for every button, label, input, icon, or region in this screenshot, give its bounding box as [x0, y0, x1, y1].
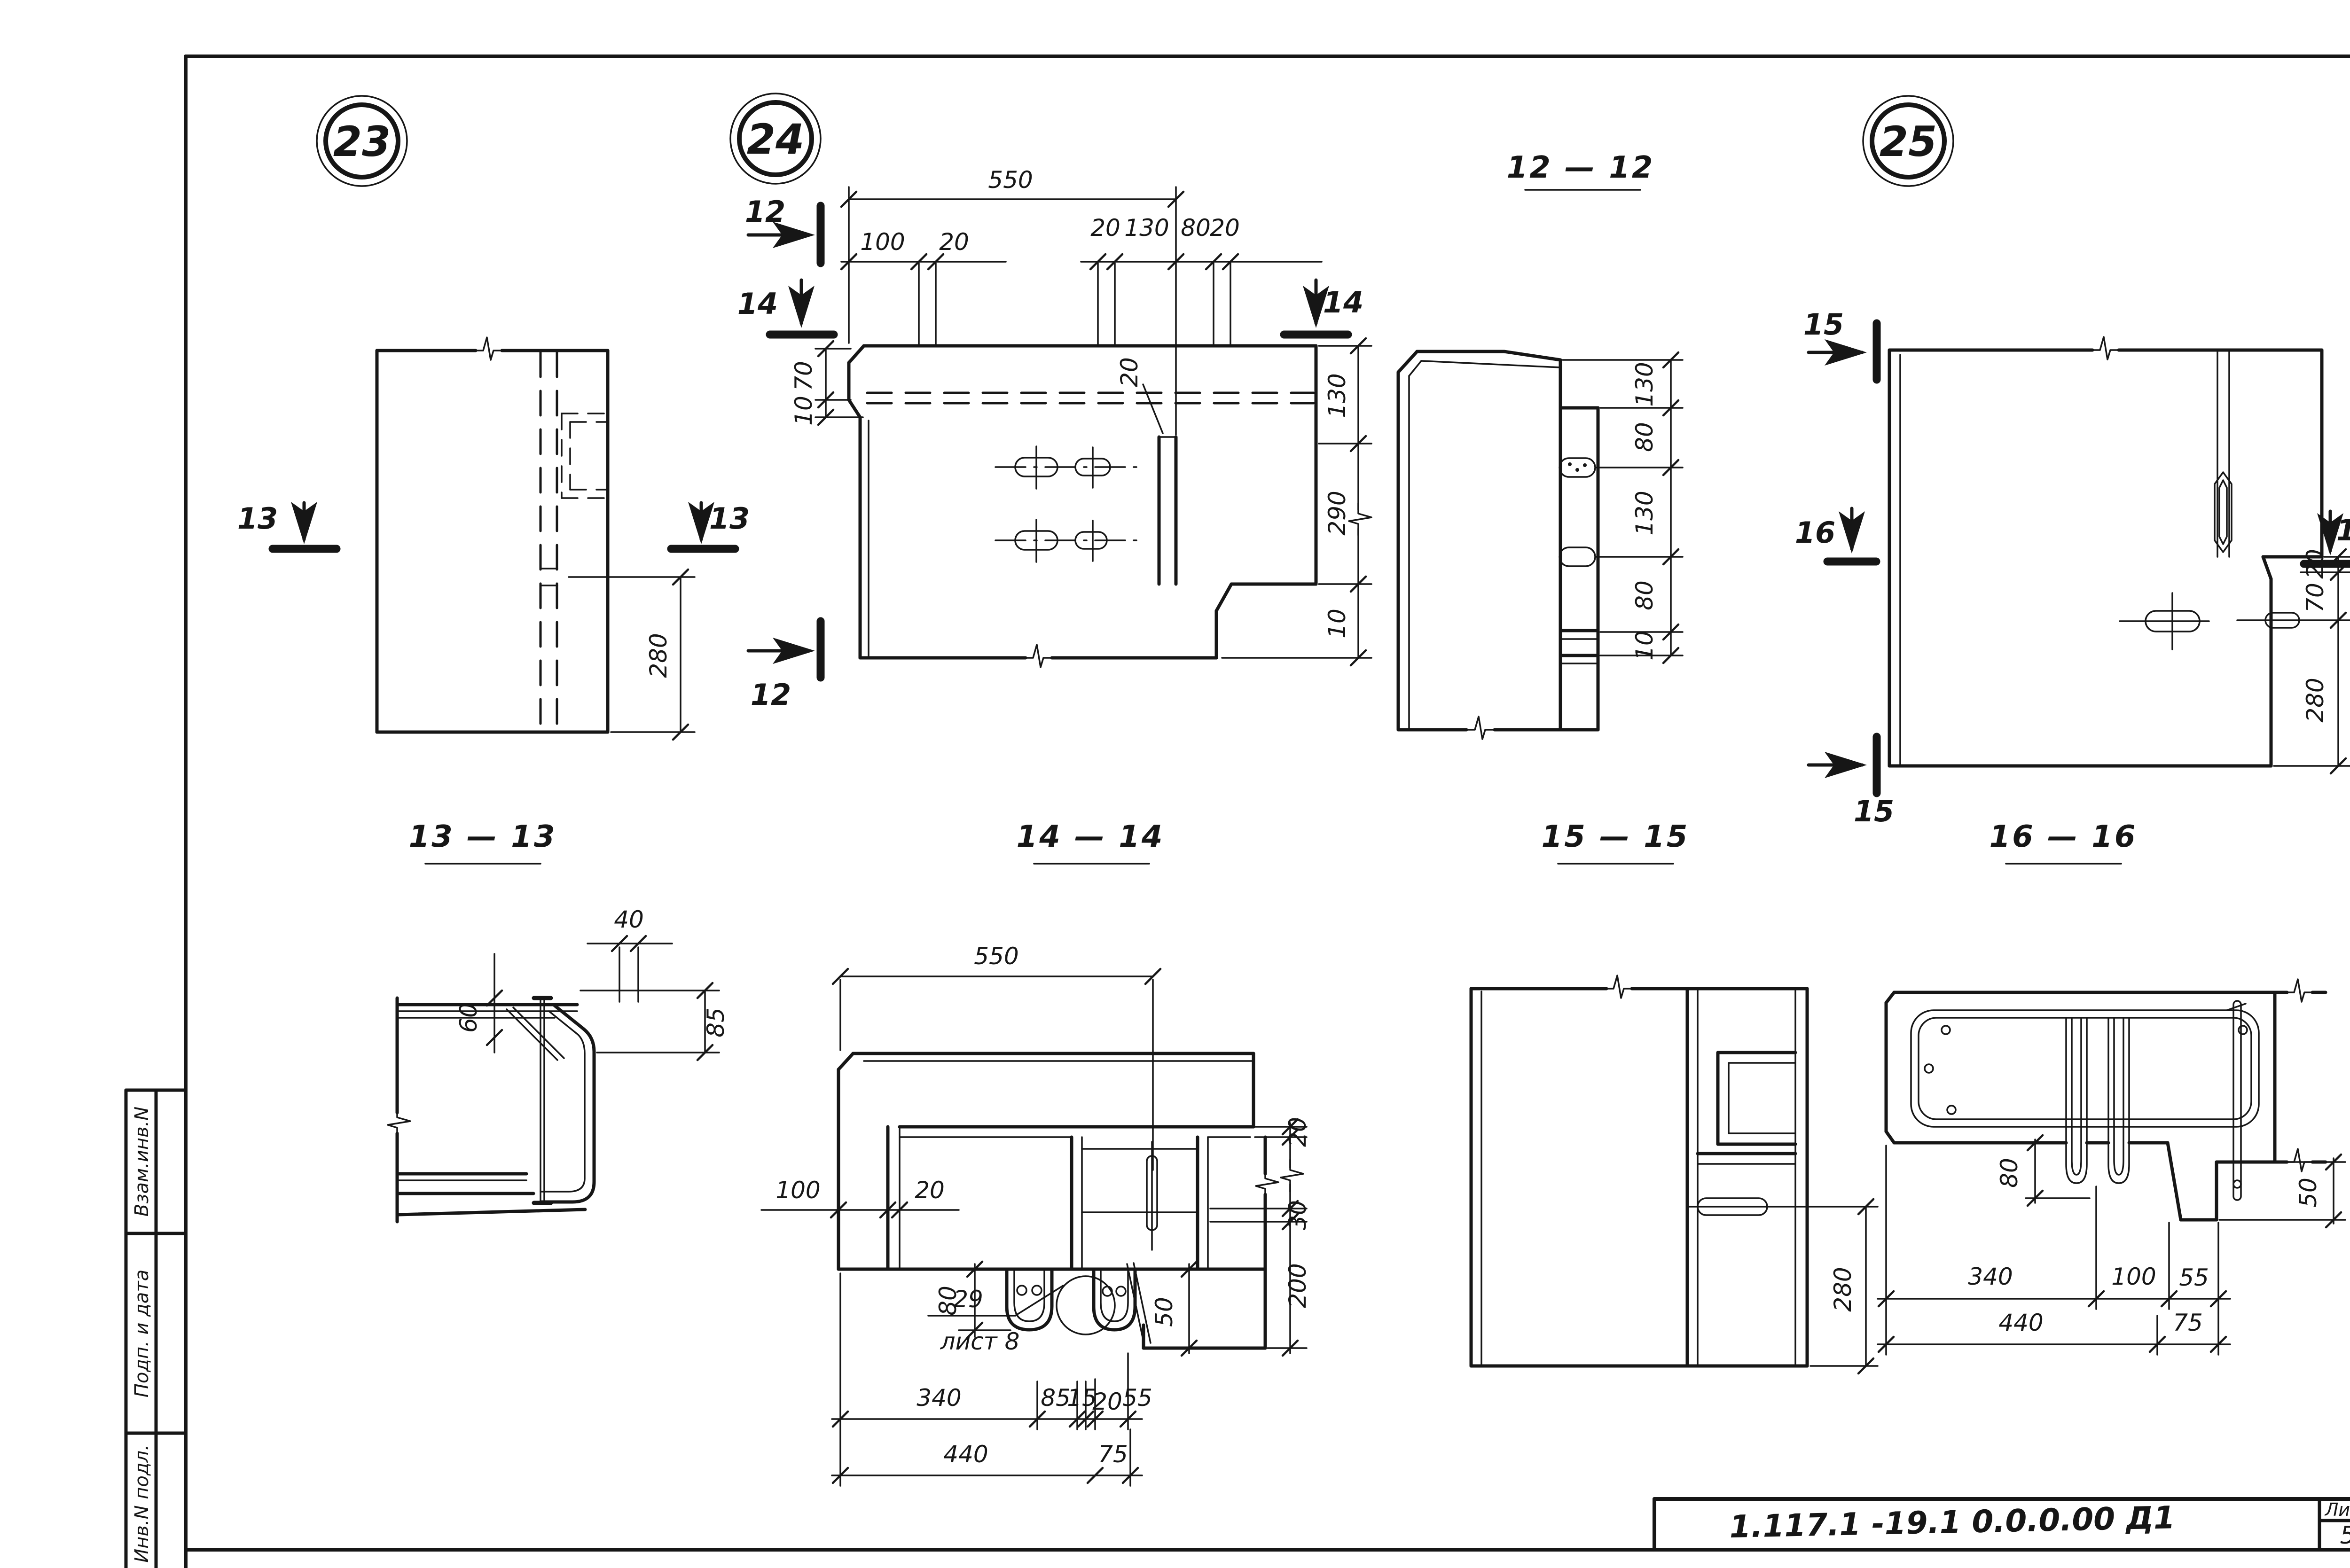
dim-v13-60: 60 [455, 1003, 482, 1033]
badge-24-number: 24 [747, 115, 804, 164]
view-23-cut-marker-13-right: 13 [671, 501, 750, 549]
dim-v14-20: 20 [915, 1177, 945, 1204]
section-title-14: 14 — 14 [1017, 819, 1165, 864]
svg-text:15: 15 [1803, 307, 1844, 342]
view-25-cut-marker-16-left: 16 [1795, 508, 1876, 562]
dim-v14-550: 550 [974, 943, 1018, 970]
svg-text:12: 12 [751, 678, 791, 712]
view-23-cut-marker-13-left: 13 [237, 501, 337, 549]
dim-v24-20a: 20 [939, 228, 969, 256]
view-16-16: 80 50 340 100 55 440 75 [1878, 979, 2345, 1355]
section-title-16: 16 — 16 [1990, 819, 2138, 864]
view-23-body [377, 337, 608, 732]
dim-v25-70: 70 [2302, 583, 2329, 613]
dim-v23-280: 280 [645, 633, 672, 678]
dim-v16-440: 440 [1998, 1309, 2043, 1336]
dim-v14-85: 85 [1041, 1384, 1071, 1412]
dim-v14-20r: 20 [1284, 1117, 1311, 1147]
view-15-15-body [1471, 975, 1807, 1366]
section-title-15: 15 — 15 [1542, 819, 1690, 864]
dim-v14-75: 75 [1098, 1441, 1128, 1468]
sidebar-label-inv: Инв.N подл. [131, 1444, 153, 1563]
dim-v15-280: 280 [1829, 1267, 1856, 1311]
view-24-cut-marker-12-bottom: 12 [748, 621, 821, 712]
view-15-15-dims: 280 [1687, 1199, 1878, 1373]
blueprint-canvas: Взам.инв.N Подп. и дата Инв.N подл. 1.11… [0, 0, 2350, 1568]
dim-v24-20c: 20 [1210, 214, 1240, 242]
dim-v12-130b: 130 [1631, 491, 1658, 535]
view-25-body [1889, 337, 2322, 766]
dim-v16-80: 80 [1996, 1158, 2023, 1188]
sidebar-stamp-column: Взам.инв.N Подп. и дата Инв.N подл. [126, 1090, 186, 1568]
dim-v24-slot20: 20 [1116, 357, 1143, 387]
dim-v24-10a: 10 [790, 396, 817, 426]
view-25-cut-marker-15-bottom: 15 [1809, 737, 1894, 828]
doc-number: 1.117.1 -19.1 0.0.0.00 Д1 [1729, 1499, 2176, 1545]
view-23-dims: 280 [569, 569, 695, 740]
dim-v24-80: 80 [1181, 214, 1211, 242]
sidebar-label-podp: Подп. и дата [131, 1270, 153, 1397]
svg-text:14: 14 [1323, 285, 1363, 320]
view-12-12-body [1398, 351, 1598, 739]
dim-v14-200: 200 [1284, 1263, 1311, 1308]
svg-text:13: 13 [709, 501, 750, 536]
dim-v12-10: 10 [1631, 631, 1658, 661]
svg-text:16: 16 [2336, 513, 2350, 547]
dim-v14-50: 50 [1151, 1297, 1178, 1327]
dim-v12-80b: 80 [1631, 580, 1658, 610]
sheet-number: 5 [2340, 1521, 2350, 1550]
view-14-14: 29 лист 8 550 100 20 80 50 [761, 943, 1311, 1486]
section-title-13: 13 — 13 [409, 819, 557, 864]
sheet-frame [186, 56, 2350, 1568]
dim-v14-340: 340 [916, 1384, 961, 1412]
view-24-cut-marker-14-right: 14 [1284, 280, 1363, 335]
drawing-sheet: Взам.инв.N Подп. и дата Инв.N подл. 1.11… [0, 0, 2350, 1568]
svg-text:14 — 14: 14 — 14 [1017, 819, 1165, 854]
detail-badge-23: 23 [317, 96, 407, 186]
dim-v24-290: 290 [1324, 491, 1351, 535]
svg-text:13 — 13: 13 — 13 [409, 819, 557, 854]
view-14-14-dims: 550 100 20 80 50 20 30 200 [761, 943, 1311, 1486]
dim-v14-55: 55 [1122, 1384, 1152, 1412]
svg-text:16: 16 [1795, 515, 1835, 550]
dim-v16-55: 55 [2179, 1264, 2209, 1291]
dim-v12-80a: 80 [1631, 422, 1658, 452]
view-24-cut-marker-14-left: 14 [737, 280, 834, 335]
view-25-cut-marker-15-top: 15 [1803, 307, 1877, 380]
view-25-dims: 20 70 280 [2237, 549, 2350, 773]
badge-23-number: 23 [333, 117, 391, 166]
badge-25-number: 25 [1880, 117, 1937, 166]
view-13-13-body [388, 998, 594, 1222]
sheet-word: Лист [2324, 1499, 2350, 1520]
svg-text:12: 12 [745, 195, 785, 229]
view-25: 15 15 16 16 20 70 [1795, 307, 2350, 828]
dim-v24-130: 130 [1124, 214, 1169, 242]
view-16-16-body [1886, 979, 2326, 1220]
view-13-13: 40 60 85 [388, 906, 729, 1222]
svg-text:13: 13 [237, 501, 278, 536]
view-12-12: 130 80 130 80 10 [1398, 351, 1683, 739]
view-14-14-body [838, 1053, 1278, 1348]
dim-v13-85: 85 [702, 1007, 729, 1038]
dim-v12-130a: 130 [1631, 362, 1658, 406]
detail-badge-25: 25 [1863, 96, 1953, 186]
dim-v16-100: 100 [2111, 1263, 2156, 1290]
dim-v24-20b: 20 [1090, 214, 1120, 242]
svg-text:14: 14 [737, 287, 778, 321]
sidebar-label-vzam: Взам.инв.N [131, 1107, 153, 1217]
section-title-12: 12 — 12 [1507, 150, 1655, 190]
view-24-dims: 550 100 20 20 130 80 20 20 70 [790, 166, 1371, 665]
dim-v16-75: 75 [2173, 1309, 2203, 1336]
dim-v24-550: 550 [988, 166, 1033, 194]
callout-sheet-ref: лист 8 [940, 1328, 1020, 1355]
dim-v13-40: 40 [614, 906, 644, 933]
detail-badge-24: 24 [730, 94, 821, 184]
dim-v24-70: 70 [790, 361, 817, 391]
dim-v16-340: 340 [1968, 1263, 2013, 1290]
dim-v14-80: 80 [934, 1286, 962, 1316]
dim-v14-440: 440 [943, 1441, 988, 1468]
svg-text:15: 15 [1854, 794, 1894, 828]
svg-text:12 — 12: 12 — 12 [1507, 150, 1655, 185]
view-24-body [849, 346, 1316, 667]
dim-v25-20: 20 [2302, 549, 2329, 579]
dim-v25-280: 280 [2302, 678, 2329, 722]
svg-text:15 — 15: 15 — 15 [1542, 819, 1690, 854]
view-16-16-dims: 80 50 340 100 55 440 75 [1878, 1135, 2345, 1355]
view-24: 12 14 14 12 550 [737, 166, 1371, 712]
title-block: 1.117.1 -19.1 0.0.0.00 Д1 Лист 5 [1654, 1499, 2350, 1550]
view-23: 13 13 280 [237, 337, 750, 740]
dim-v24-10b: 10 [1324, 608, 1351, 639]
dim-v24-100: 100 [860, 228, 905, 256]
dim-v14-100: 100 [775, 1177, 820, 1204]
view-24-cut-marker-12-top: 12 [745, 195, 821, 263]
view-12-12-dims: 130 80 130 80 10 [1563, 352, 1683, 663]
dim-v16-50: 50 [2295, 1178, 2322, 1208]
dim-v14-30: 30 [1284, 1200, 1311, 1230]
dim-v14-20b: 20 [1092, 1388, 1122, 1415]
view-15-15: 280 [1471, 975, 1878, 1373]
svg-text:16 — 16: 16 — 16 [1990, 819, 2138, 854]
dim-v24-130r: 130 [1324, 373, 1351, 418]
